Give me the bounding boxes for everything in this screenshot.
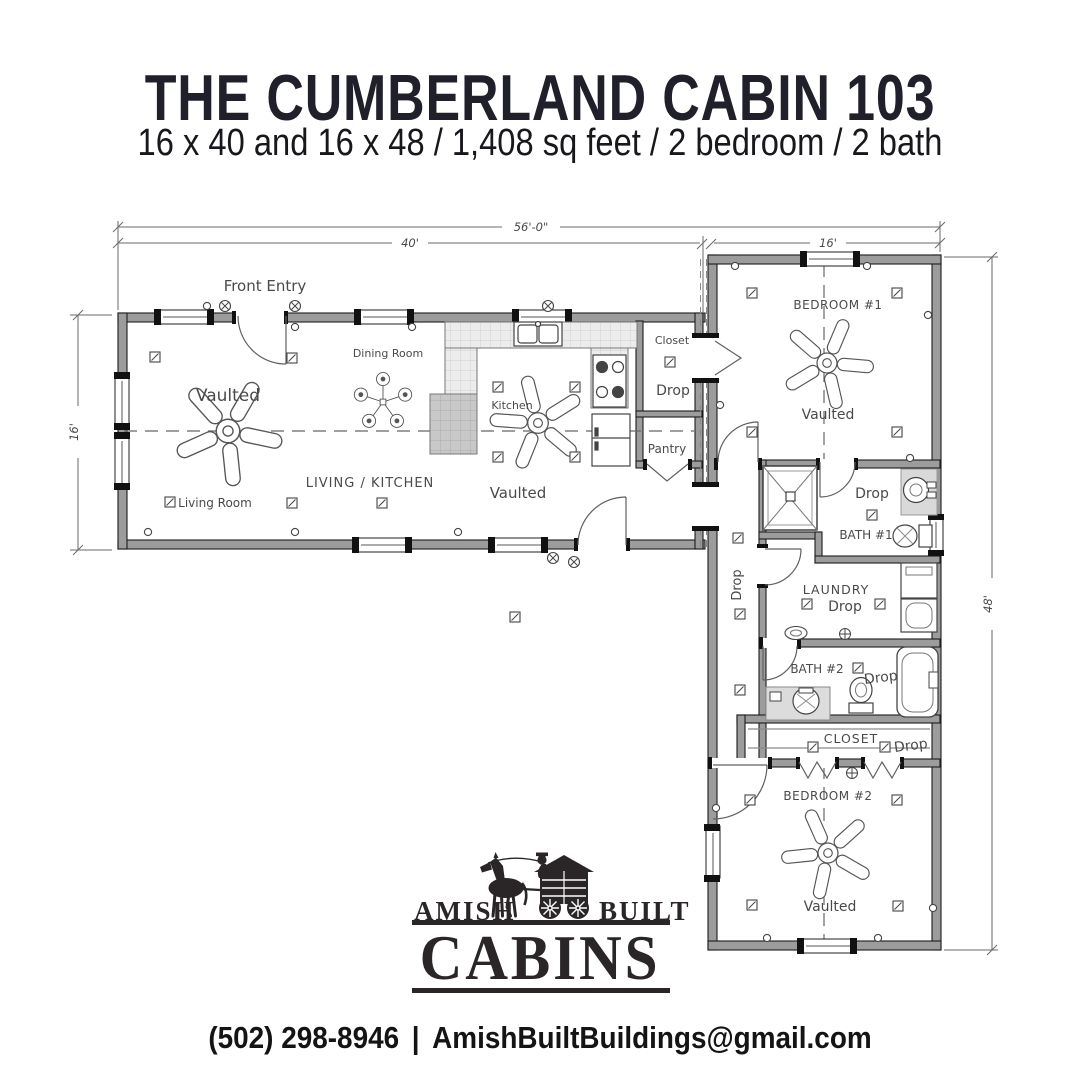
logo-cabins-text: CABINS (32, 922, 1047, 995)
label-closet: Closet (655, 334, 690, 347)
window (488, 537, 548, 553)
window (352, 537, 412, 553)
label-bedroom2: BEDROOM #2 (783, 789, 872, 803)
dim-left-wing-depth: 16' (67, 423, 81, 441)
contact-line: (502) 298-8946|AmishBuiltBuildings@gmail… (54, 1020, 1026, 1056)
label-closet2: CLOSET (824, 731, 879, 746)
refrigerator (592, 414, 630, 466)
label-dining-room: Dining Room (353, 347, 423, 360)
window (114, 432, 130, 490)
chandelier-icon (354, 372, 411, 427)
label-front-entry: Front Entry (224, 277, 307, 295)
label-living-room: Living Room (178, 496, 252, 510)
bath2-vanity (766, 687, 830, 720)
window (800, 251, 860, 267)
bath1-vanity (901, 469, 937, 515)
dim-left-wing-width: 40' (401, 236, 419, 250)
bedroom2-light (847, 768, 858, 779)
laundry-light (840, 629, 851, 640)
label-drop-laundry: Drop (828, 599, 862, 615)
shower (763, 466, 817, 530)
label-drop-hall: Drop (730, 569, 745, 600)
footer-separator: | (412, 1020, 420, 1055)
label-vaulted-living: Vaulted (196, 386, 260, 406)
window (354, 309, 414, 325)
label-pantry: Pantry (648, 442, 686, 456)
laundry-sink (785, 627, 807, 640)
dim-right-wing-depth: 48' (981, 595, 995, 613)
label-drop-bath1: Drop (855, 486, 889, 502)
label-drop-bath2: Drop (863, 668, 898, 688)
label-vaulted-kitchen: Vaulted (490, 484, 547, 502)
washer-dryer (901, 563, 937, 632)
window (154, 309, 214, 325)
stove (593, 355, 626, 407)
label-bath2: BATH #2 (790, 662, 843, 676)
label-bath1: BATH #1 (839, 528, 892, 542)
label-drop-closet: Drop (656, 383, 690, 399)
label-vaulted-bedroom1: Vaulted (802, 407, 855, 423)
kitchen-sink (514, 322, 562, 347)
flyer-page: THE CUMBERLAND CABIN 103 16 x 40 and 16 … (0, 0, 1080, 1080)
label-living-kitchen: LIVING / KITCHEN (306, 476, 435, 491)
email-address: AmishBuiltBuildings@gmail.com (432, 1020, 872, 1055)
logo-divider-bottom (412, 988, 670, 993)
label-kitchen: Kitchen (491, 399, 532, 412)
phone-number: (502) 298-8946 (208, 1020, 399, 1055)
bath1-toilet (893, 525, 932, 547)
label-bedroom1: BEDROOM #1 (793, 298, 882, 312)
label-laundry: LAUNDRY (803, 582, 869, 597)
horse-and-wagon-logo-icon (476, 848, 604, 924)
dim-overall-width: 56'-0" (514, 220, 549, 234)
label-vaulted-bedroom2: Vaulted (804, 899, 857, 915)
dim-right-wing-width: 16' (819, 236, 837, 250)
bathtub (897, 647, 938, 717)
label-drop-closet2: Drop (893, 736, 928, 756)
window (114, 372, 130, 430)
window (704, 824, 720, 882)
